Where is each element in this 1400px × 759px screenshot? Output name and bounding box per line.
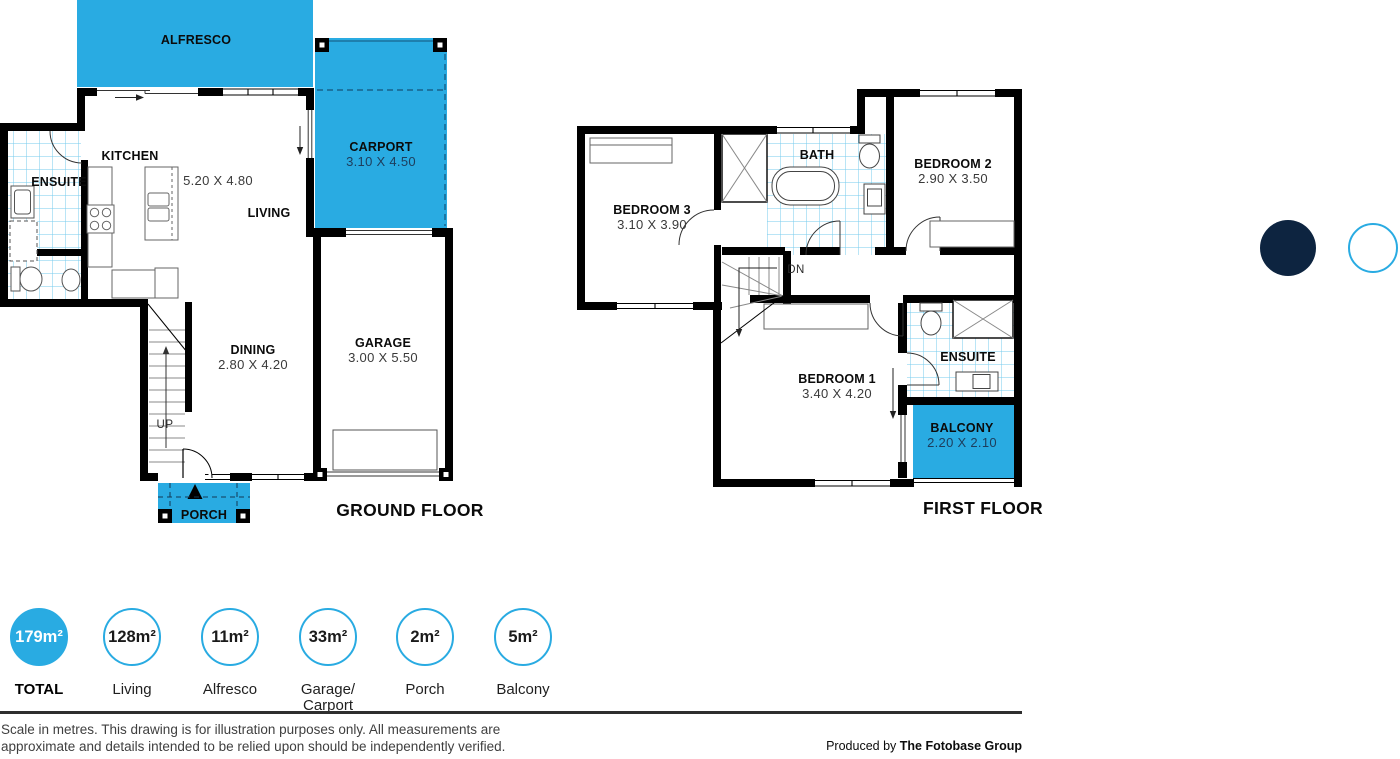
legend-label-balcony: Balcony [481, 682, 565, 698]
produced-by-prefix: Produced by [826, 739, 900, 753]
kitchen-fixtures [87, 167, 178, 298]
legend-item-living: 128m² Living [90, 608, 174, 698]
legend-item-total: 179m² TOTAL [0, 608, 81, 698]
label-bedroom2: BEDROOM 2 2.90 X 3.50 [914, 157, 992, 187]
label-kitchen: KITCHEN [102, 149, 159, 163]
legend-label-living: Living [90, 682, 174, 698]
floorplan-page: ALFRESCO CARPORT 3.10 X 4.50 KITCHEN ENS… [0, 0, 1400, 759]
label-bedroom3: BEDROOM 3 3.10 X 3.90 [613, 203, 691, 233]
label-bedroom1: BEDROOM 1 3.40 X 4.20 [798, 372, 876, 402]
label-up: UP [157, 419, 174, 431]
label-bath: BATH [800, 148, 835, 162]
plan-nav-dot-active[interactable] [1260, 220, 1316, 276]
label-carport: CARPORT 3.10 X 4.50 [346, 140, 416, 170]
label-garage: GARAGE 3.00 X 5.50 [348, 336, 418, 366]
gf-arrows [115, 94, 303, 155]
label-balcony: BALCONY 2.20 X 2.10 [927, 421, 997, 451]
label-porch: PORCH [181, 508, 227, 522]
legend-label-porch: Porch [383, 682, 467, 698]
label-living-dims: 5.20 X 4.80 [183, 173, 253, 189]
ground-floor-plan [0, 0, 453, 523]
ground-floor-title: GROUND FLOOR [336, 500, 483, 521]
legend-item-balcony: 5m² Balcony [481, 608, 565, 698]
legend-item-alfresco: 11m² Alfresco [188, 608, 272, 698]
label-dining: DINING 2.80 X 4.20 [218, 343, 288, 373]
footer-divider [0, 711, 1022, 714]
label-living: LIVING [248, 206, 291, 220]
producer-name: The Fotobase Group [900, 739, 1022, 753]
garage-door [333, 430, 437, 470]
entry-door [183, 449, 212, 478]
legend-circle-garage-carport: 33m² [299, 608, 357, 666]
label-alfresco: ALFRESCO [161, 33, 231, 47]
legend-label-garage-carport: Garage/ Carport [286, 682, 370, 714]
legend-circle-porch: 2m² [396, 608, 454, 666]
gf-windows [205, 89, 304, 480]
first-floor-title: FIRST FLOOR [923, 498, 1043, 519]
legend-circle-total: 179m² [10, 608, 68, 666]
legend-circle-alfresco: 11m² [201, 608, 259, 666]
legend-label-alfresco: Alfresco [188, 682, 272, 698]
carport-area [315, 38, 447, 228]
label-dn: DN [787, 264, 805, 276]
legend-label-total: TOTAL [0, 682, 81, 698]
label-ff-ensuite: ENSUITE [940, 350, 996, 364]
label-gf-ensuite: ENSUITE [31, 175, 87, 189]
legend-circle-balcony: 5m² [494, 608, 552, 666]
produced-by: Produced by The Fotobase Group [700, 739, 1022, 753]
balcony-slider [901, 415, 905, 462]
legend-item-porch: 2m² Porch [383, 608, 467, 698]
legend-item-garage-carport: 33m² Garage/ Carport [286, 608, 370, 714]
legend-circle-living: 128m² [103, 608, 161, 666]
disclaimer-text: Scale in metres. This drawing is for ill… [1, 722, 505, 755]
plan-nav-dot-inactive[interactable] [1348, 223, 1398, 273]
